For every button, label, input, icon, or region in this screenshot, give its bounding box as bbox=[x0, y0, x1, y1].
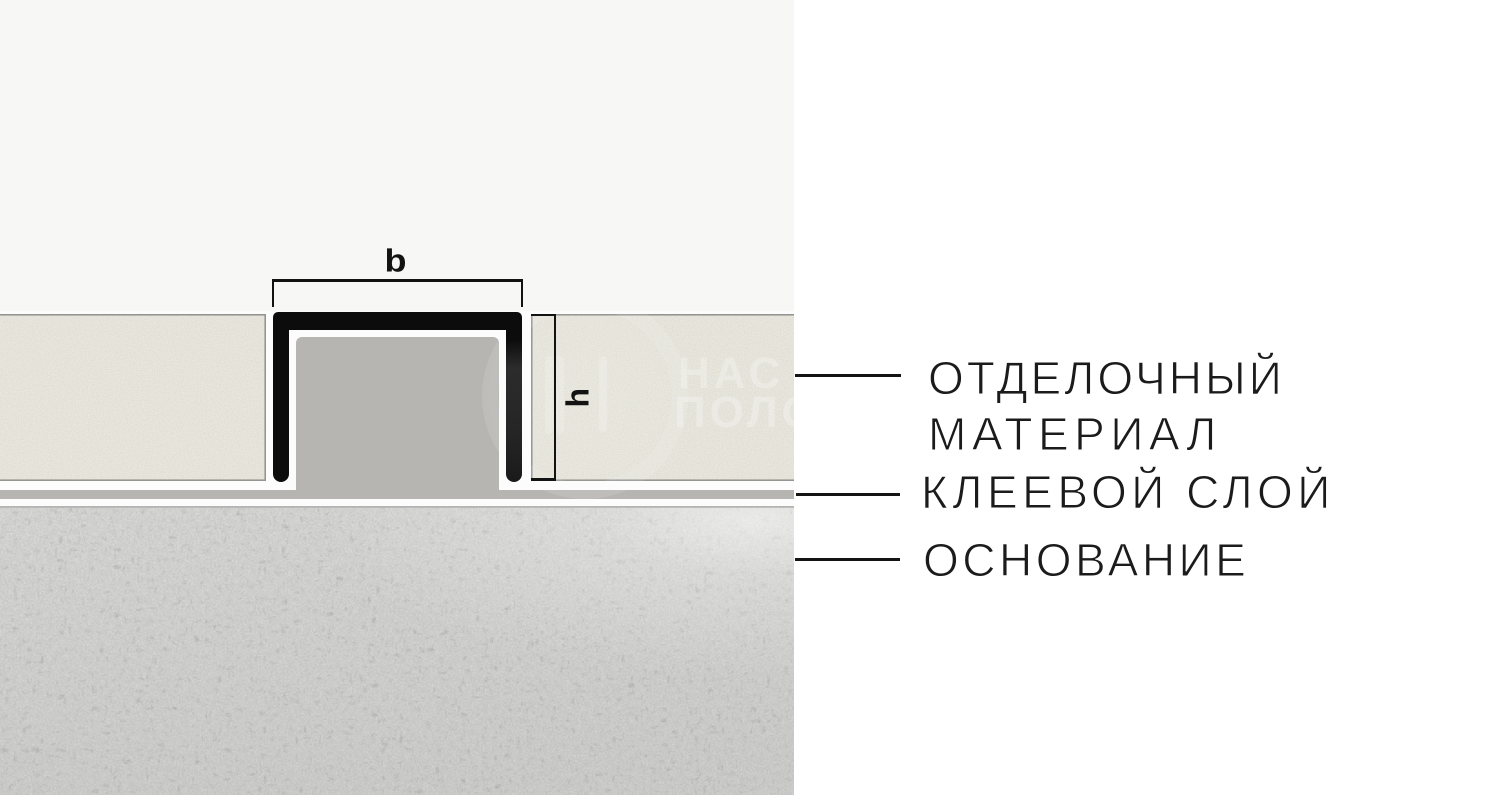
svg-text:h: h bbox=[560, 388, 596, 408]
svg-text:b: b bbox=[385, 243, 407, 279]
svg-text:ПОЛО: ПОЛО bbox=[674, 388, 794, 437]
